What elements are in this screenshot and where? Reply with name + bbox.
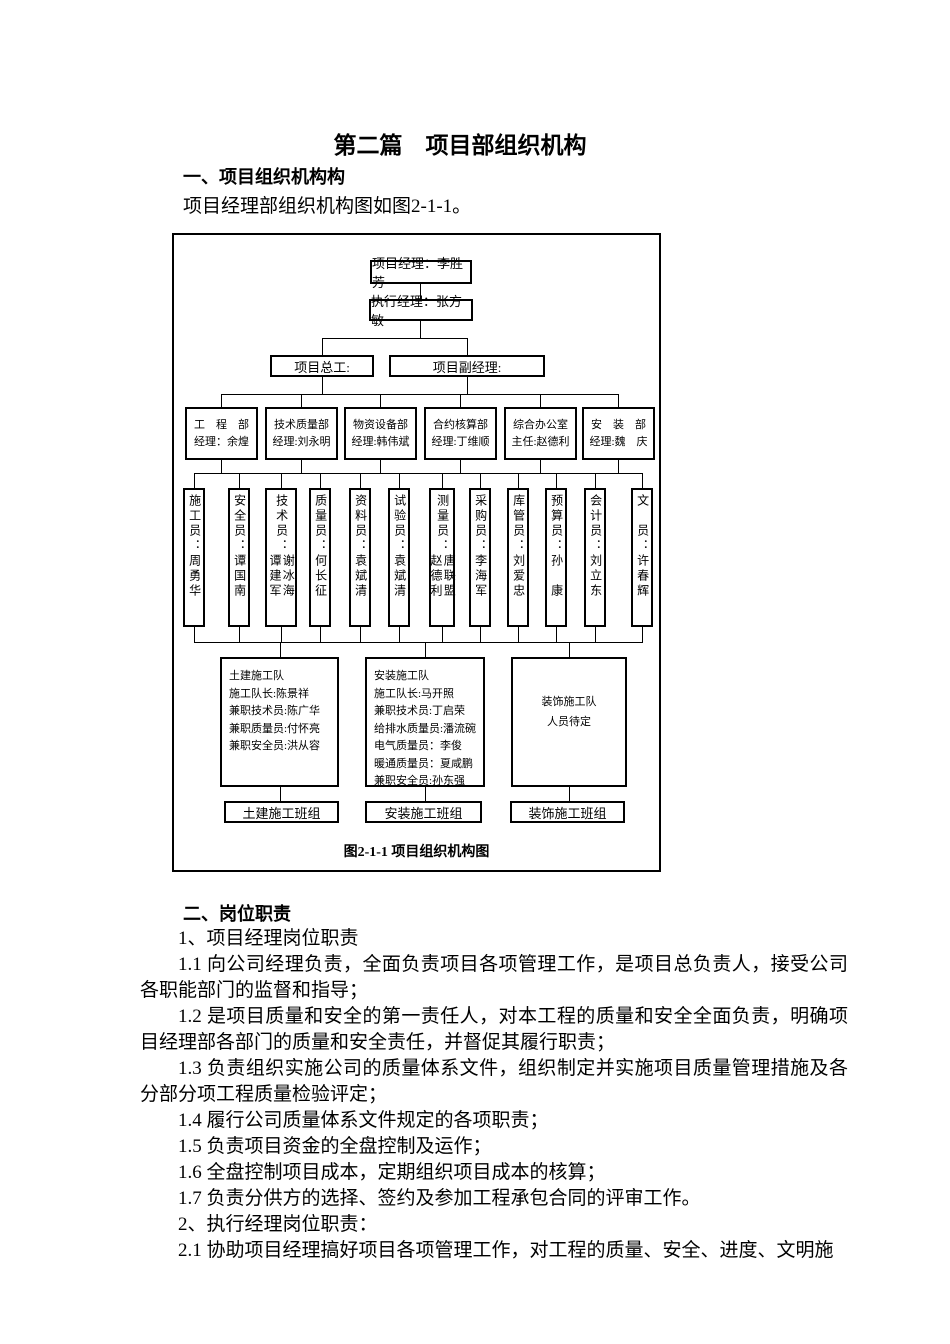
connector-line <box>280 787 281 801</box>
connector-line <box>540 460 541 473</box>
staff-title: 技术员： <box>274 494 287 554</box>
staff-title: 采购员： <box>473 494 486 554</box>
dept-manager: 经理：余煌 <box>194 437 249 448</box>
connector-line <box>221 394 619 395</box>
box-staff-estimator: 预算员： 孙 康 <box>545 488 567 627</box>
connector-line <box>642 627 643 642</box>
duty-paragraph: 1、项目经理岗位职责 <box>140 926 848 952</box>
box-executive-manager: 执行经理：张方敏 <box>369 299 473 321</box>
team-line: 施工队长:陈景祥 <box>229 686 309 704</box>
org-chart: 项目经理：李胜芳 执行经理：张方敏 项目总工: 项目副经理: 工 程 部 经理：… <box>172 233 661 872</box>
box-staff-accountant: 会计员： 刘立东 <box>584 488 606 627</box>
connector-line <box>239 627 240 642</box>
box-project-manager: 项目经理：李胜芳 <box>370 260 472 284</box>
box-chief-engineer: 项目总工: <box>270 355 374 377</box>
box-dept-materials: 物资设备部 经理:韩伟斌 <box>344 407 417 460</box>
team-line: 土建施工队 <box>229 668 284 686</box>
box-dept-contracts: 合约核算部 经理:丁维顺 <box>424 407 497 460</box>
staff-title: 质量员： <box>313 494 326 554</box>
dept-manager: 经理:魏 庆 <box>589 437 647 448</box>
box-crew-decoration: 装饰施工班组 <box>510 801 625 823</box>
staff-title: 文 员： <box>635 494 648 554</box>
connector-line <box>569 642 570 657</box>
box-crew-civil: 土建施工班组 <box>224 801 339 823</box>
box-dept-engineering: 工 程 部 经理：余煌 <box>185 407 258 460</box>
connector-line <box>442 473 443 488</box>
connector-line <box>442 627 443 642</box>
staff-title: 库管员： <box>511 494 524 554</box>
box-staff-document-clerk: 资料员： 袁斌清 <box>349 488 371 627</box>
connector-line <box>301 394 302 407</box>
connector-line <box>425 787 426 801</box>
connector-line <box>380 460 381 473</box>
connector-line <box>642 473 643 488</box>
connector-line <box>556 473 557 488</box>
box-crew-installation: 安装施工班组 <box>365 801 482 823</box>
box-team-decoration: 装饰施工队 人员待定 <box>511 657 627 787</box>
duty-paragraph: 2、执行经理岗位职责： <box>140 1212 848 1238</box>
connector-line <box>380 394 381 407</box>
staff-name: 袁斌清 <box>353 554 366 599</box>
staff-name: 许春辉 <box>635 554 648 599</box>
connector-line <box>322 338 468 339</box>
staff-name: 谭国南 <box>232 554 245 599</box>
page-title: 第二篇 项目部组织机构 <box>0 126 920 160</box>
staff-name: 周勇华 <box>187 554 200 599</box>
connector-line <box>322 377 323 394</box>
staff-title: 安全员： <box>232 494 245 554</box>
connector-line <box>467 338 468 355</box>
connector-line <box>618 460 619 473</box>
connector-line <box>399 473 400 488</box>
connector-line <box>194 627 195 642</box>
connector-line <box>420 321 421 338</box>
box-staff-test-officer: 试验员： 袁斌清 <box>388 488 410 627</box>
dept-name: 合约核算部 <box>433 420 488 431</box>
dept-manager: 经理:刘永明 <box>272 437 330 448</box>
staff-name: 刘立东 <box>588 554 601 599</box>
duty-paragraph: 2.1 协助项目经理搞好项目各项管理工作，对工程的质量、安全、进度、文明施 <box>140 1238 848 1264</box>
staff-title: 试验员： <box>392 494 405 554</box>
staff-title: 预算员： <box>549 494 562 554</box>
box-staff-construction-worker: 施工员： 周勇华 <box>183 488 205 627</box>
staff-title: 施工员： <box>187 494 200 554</box>
box-dept-tech-quality: 技术质量部 经理:刘永明 <box>265 407 338 460</box>
staff-name: 孙 康 <box>549 554 562 599</box>
staff-name: 袁斌清 <box>392 554 405 599</box>
dept-name: 安 装 部 <box>591 420 646 431</box>
team-line: 电气质量员：李俊 <box>374 738 462 756</box>
connector-line <box>399 627 400 642</box>
box-staff-warehouse-keeper: 库管员： 刘爱忠 <box>507 488 529 627</box>
duty-paragraph: 1.4 履行公司质量体系文件规定的各项职责； <box>140 1108 848 1134</box>
connector-line <box>320 627 321 642</box>
duty-paragraph: 1.2 是项目质量和安全的第一责任人，对本工程的质量和安全全面负责，明确项目经理… <box>140 1004 848 1056</box>
team-line: 兼职安全员:孙东强 <box>374 773 465 791</box>
connector-line <box>556 627 557 642</box>
dept-manager: 经理:韩伟斌 <box>351 437 409 448</box>
box-team-civil: 土建施工队 施工队长:陈景祥 兼职技术员:陈广华 兼职质量员:付怀亮 兼职安全员… <box>220 657 339 787</box>
connector-line <box>460 394 461 407</box>
duty-paragraph: 1.6 全盘控制项目成本，定期组织项目成本的核算； <box>140 1160 848 1186</box>
box-dept-office: 综合办公室 主任:赵德利 <box>504 407 577 460</box>
section1-intro: 项目经理部组织机构图如图2-1-1。 <box>183 191 471 218</box>
connector-line <box>360 473 361 488</box>
box-staff-quality-officer: 质量员： 何长征 <box>309 488 331 627</box>
duty-paragraph: 1.3 负责组织实施公司的质量体系文件，组织制定并实施项目质量管理措施及各分部分… <box>140 1056 848 1108</box>
connector-line <box>322 338 323 355</box>
connector-line <box>480 473 481 488</box>
staff-name: 谭建军 <box>268 554 281 599</box>
connector-line <box>281 627 282 642</box>
connector-line <box>194 642 643 643</box>
staff-name: 唐联盟 <box>442 554 455 599</box>
connector-line <box>360 627 361 642</box>
dept-name: 工 程 部 <box>194 420 249 431</box>
team-line: 暖通质量员：夏咸鹏 <box>374 756 473 774</box>
connector-line <box>460 460 461 473</box>
dept-manager: 经理:丁维顺 <box>431 437 489 448</box>
staff-name: 刘爱忠 <box>511 554 524 599</box>
box-dept-installation: 安 装 部 经理:魏 庆 <box>582 407 655 460</box>
team-line: 兼职安全员:洪从容 <box>229 738 320 756</box>
team-line: 兼职技术员:丁启荣 <box>374 703 465 721</box>
connector-line <box>194 473 643 474</box>
box-staff-technician: 技术员： 谭建军谢冰海 <box>265 488 297 627</box>
staff-title: 测量员： <box>435 494 448 554</box>
connector-line <box>301 460 302 473</box>
connector-line <box>480 627 481 642</box>
team-line: 装饰施工队 <box>542 692 597 712</box>
connector-line <box>425 642 426 657</box>
box-staff-safety-officer: 安全员： 谭国南 <box>228 488 250 627</box>
document-page: 第二篇 项目部组织机构 一、项目组织机构构 项目经理部组织机构图如图2-1-1。… <box>0 0 950 1344</box>
staff-title: 资料员： <box>353 494 366 554</box>
connector-line <box>569 787 570 801</box>
team-line: 施工队长:马开照 <box>374 686 454 704</box>
box-deputy-manager: 项目副经理: <box>389 355 545 377</box>
connector-line <box>618 394 619 407</box>
team-line: 兼职质量员:付怀亮 <box>229 721 320 739</box>
chart-caption: 图2-1-1 项目组织机构图 <box>174 841 659 861</box>
connector-line <box>221 460 222 473</box>
team-line: 人员待定 <box>547 712 591 732</box>
duty-paragraph: 1.1 向公司经理负责，全面负责项目各项管理工作，是项目总负责人，接受公司各职能… <box>140 952 848 1004</box>
box-staff-surveyor: 测量员： 赵德利唐联盟 <box>429 488 455 627</box>
staff-name: 赵德利 <box>429 554 442 599</box>
duties-text: 1、项目经理岗位职责 1.1 向公司经理负责，全面负责项目各项管理工作，是项目总… <box>140 926 848 1264</box>
connector-line <box>281 473 282 488</box>
connector-line <box>239 473 240 488</box>
connector-line <box>518 627 519 642</box>
connector-line <box>595 473 596 488</box>
connector-line <box>194 473 195 488</box>
box-staff-office-clerk: 文 员： 许春辉 <box>631 488 653 627</box>
team-line: 兼职技术员:陈广华 <box>229 703 320 721</box>
section2-heading: 二、岗位职责 <box>183 900 291 926</box>
team-line: 给排水质量员:潘流碗 <box>374 721 476 739</box>
dept-name: 物资设备部 <box>353 420 408 431</box>
connector-line <box>221 394 222 407</box>
connector-line <box>540 394 541 407</box>
dept-name: 技术质量部 <box>274 420 329 431</box>
section1-heading: 一、项目组织机构构 <box>183 163 345 189</box>
staff-name: 李海军 <box>473 554 486 599</box>
duty-paragraph: 1.7 负责分供方的选择、签约及参加工程承包合同的评审工作。 <box>140 1186 848 1212</box>
connector-line <box>420 284 421 299</box>
connector-line <box>320 473 321 488</box>
team-line: 安装施工队 <box>374 668 429 686</box>
staff-title: 会计员： <box>588 494 601 554</box>
connector-line <box>595 627 596 642</box>
staff-name: 何长征 <box>313 554 326 599</box>
box-team-installation: 安装施工队 施工队长:马开照 兼职技术员:丁启荣 给排水质量员:潘流碗 电气质量… <box>365 657 485 787</box>
connector-line <box>467 377 468 394</box>
dept-manager: 主任:赵德利 <box>511 437 569 448</box>
connector-line <box>280 642 281 657</box>
box-staff-purchaser: 采购员： 李海军 <box>469 488 491 627</box>
dept-name: 综合办公室 <box>513 420 568 431</box>
connector-line <box>518 473 519 488</box>
duty-paragraph: 1.5 负责项目资金的全盘控制及运作； <box>140 1134 848 1160</box>
staff-name: 谢冰海 <box>281 554 294 599</box>
